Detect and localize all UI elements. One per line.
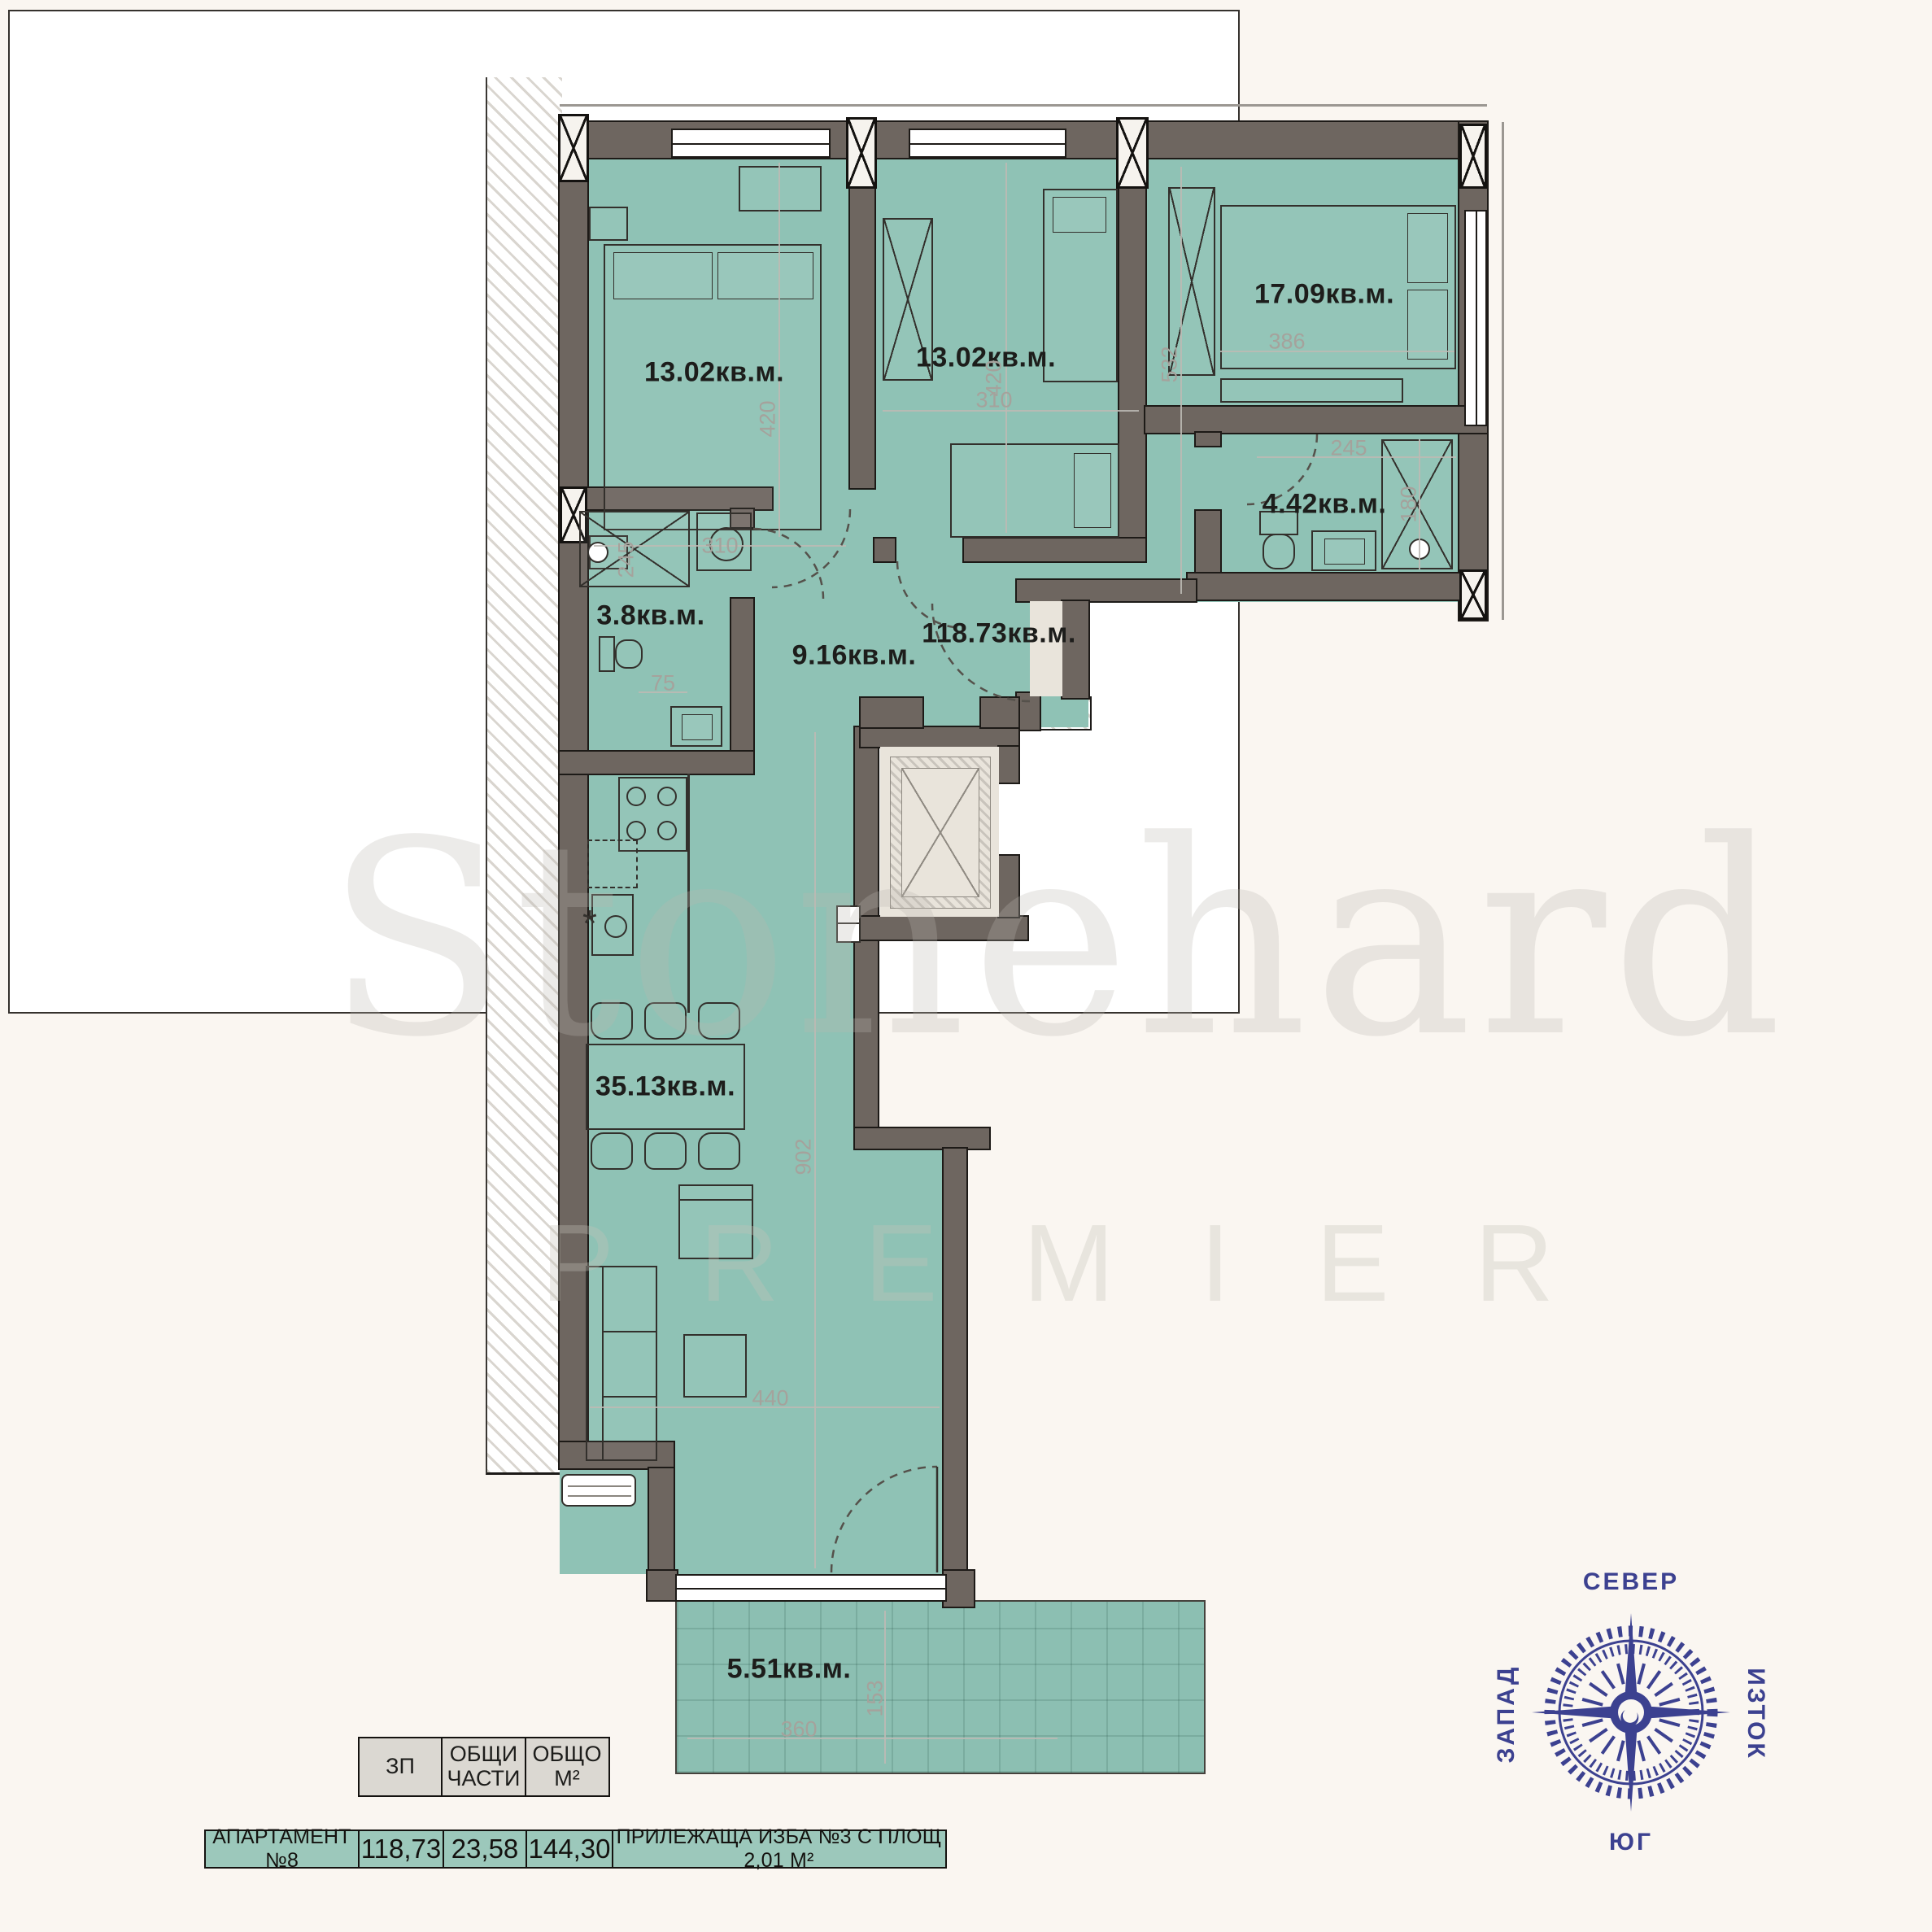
dim-bathroom-width: 245 [1330, 436, 1367, 461]
door-swing-arcs [753, 434, 1317, 1572]
dim-bedroom1-height: 420 [756, 400, 781, 437]
dim-bedroom2-width: 310 [975, 388, 1012, 413]
room-area-label: 4.42кв.м. [1263, 489, 1387, 521]
cell-common-value: 23,58 [443, 1830, 528, 1869]
compass-label-west: ЗАПАД [1493, 1633, 1520, 1795]
room-area-label: 13.02кв.м. [644, 357, 784, 389]
apartment-total-area-label: 118.73кв.м. [922, 618, 1076, 650]
summary-table-header: ЗП ОБЩИ ЧАСТИ ОБЩО М² [360, 1737, 610, 1797]
cell-apartment: АПАРТАМЕНТ №8 [204, 1830, 360, 1869]
room-area-label: 5.51кв.м. [727, 1654, 852, 1686]
cell-total-value: 144,30 [526, 1830, 613, 1869]
summary-table-row: АПАРТАМЕНТ №8 118,73 23,58 144,30 ПРИЛЕЖ… [206, 1830, 947, 1869]
dim-shower: 245 [614, 541, 639, 578]
dim-terrace-width: 360 [780, 1717, 817, 1742]
dimension-lines [590, 163, 1456, 1764]
compass-rose-icon [1525, 1607, 1737, 1818]
cell-note: ПРИЛЕЖАЩА ИЗБА №3 С ПЛОЩ 2,01 М² [612, 1830, 947, 1869]
dim-bedroom3-height: 532 [1158, 346, 1183, 382]
dim-bedroom3-width: 386 [1268, 329, 1305, 355]
header-cell-total: ОБЩО М² [525, 1737, 610, 1797]
header-cell-common: ОБЩИ ЧАСТИ [441, 1737, 526, 1797]
dim-living-width: 440 [752, 1386, 788, 1411]
header-cell-zp: ЗП [358, 1737, 443, 1797]
dim-terrace-height: 153 [863, 1680, 888, 1716]
cell-zp-value: 118,73 [358, 1830, 444, 1869]
dim-living-height: 902 [792, 1138, 817, 1175]
dim-bedroom1-width: 310 [701, 534, 738, 559]
compass-label-east: ИЗТОК [1742, 1633, 1769, 1795]
dim-kitchen: 75 [651, 671, 675, 696]
dim-bathroom-height: 180 [1397, 486, 1422, 522]
compass-label-north: СЕВЕР [1550, 1568, 1712, 1596]
floor-plan-page: * [0, 0, 1932, 1932]
compass-label-south: ЮГ [1550, 1829, 1712, 1856]
room-area-label: 9.16кв.м. [792, 640, 917, 672]
room-area-label: 3.8кв.м. [596, 600, 704, 632]
room-area-label: 17.09кв.м. [1254, 279, 1394, 311]
room-area-label: 35.13кв.м. [595, 1071, 735, 1103]
